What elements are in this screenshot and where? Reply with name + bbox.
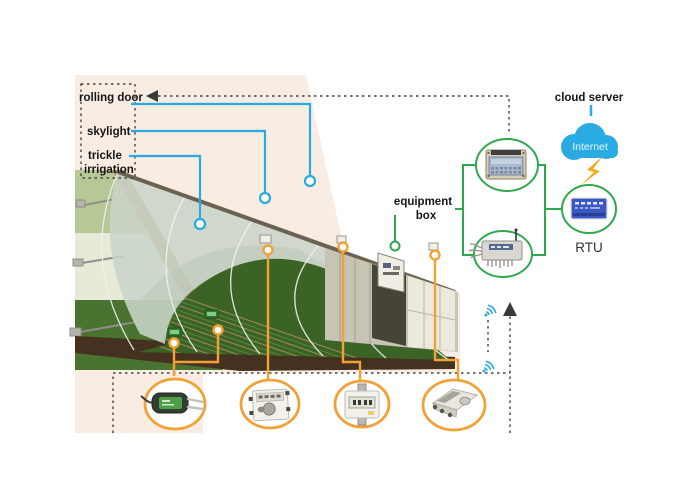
- marker-dot: [339, 243, 348, 252]
- rolling-door-marker-dot: [305, 176, 315, 186]
- label-cloud-server: cloud server: [555, 92, 624, 104]
- label-trickle-line1: trickle: [88, 150, 122, 162]
- greenhouse-iot-diagram: Internet rolling door skylight trickle i…: [0, 0, 700, 500]
- marker-dot: [431, 251, 440, 260]
- label-skylight: skylight: [87, 126, 131, 138]
- label-trickle-line2: irrigation: [84, 164, 134, 176]
- label-equipment-line1: equipment: [394, 196, 452, 208]
- marker-dot: [214, 326, 223, 335]
- rtu-device: [571, 198, 607, 219]
- equipment-box-marker-dot: [391, 242, 400, 251]
- internet-label: Internet: [572, 141, 608, 153]
- marker-dot: [264, 246, 273, 255]
- air-temperature-humidity-sensor: [248, 389, 291, 421]
- diagram-canvas: Internet rolling door skylight trickle i…: [0, 0, 700, 500]
- trickle-marker-dot: [195, 219, 205, 229]
- label-equipment-line2: box: [416, 210, 437, 222]
- control-terminal-device: [486, 150, 526, 179]
- skylight-marker-dot: [260, 193, 270, 203]
- marker-dot: [170, 339, 179, 348]
- label-rtu: RTU: [575, 240, 603, 255]
- label-rolling-door: rolling door: [79, 92, 143, 104]
